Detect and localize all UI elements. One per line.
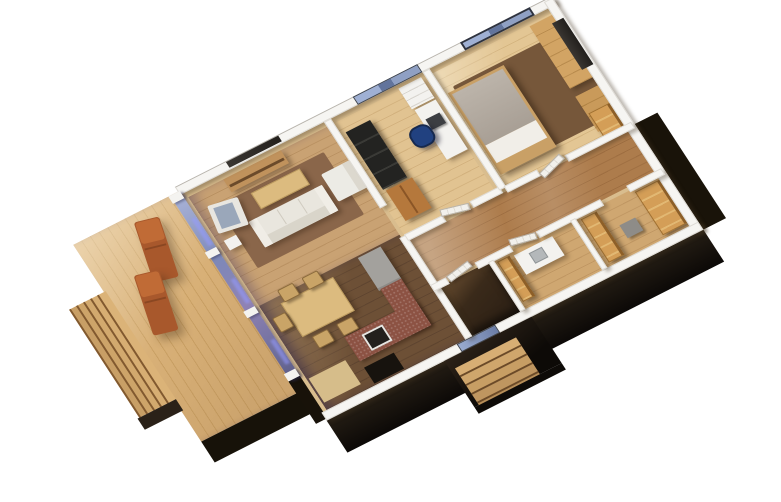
armchair-grey-seat	[213, 202, 241, 229]
lounger-frame-line	[144, 243, 166, 250]
floorplan-render	[0, 0, 781, 502]
vanity-sink	[529, 247, 549, 264]
lounger-backrest	[135, 218, 165, 245]
lounger-frame-line	[144, 297, 166, 304]
lounger-backrest	[135, 271, 165, 298]
sofa-seat-line	[298, 199, 308, 214]
wardrobe-door-split	[399, 185, 418, 213]
sofa-seat-line	[277, 209, 287, 224]
